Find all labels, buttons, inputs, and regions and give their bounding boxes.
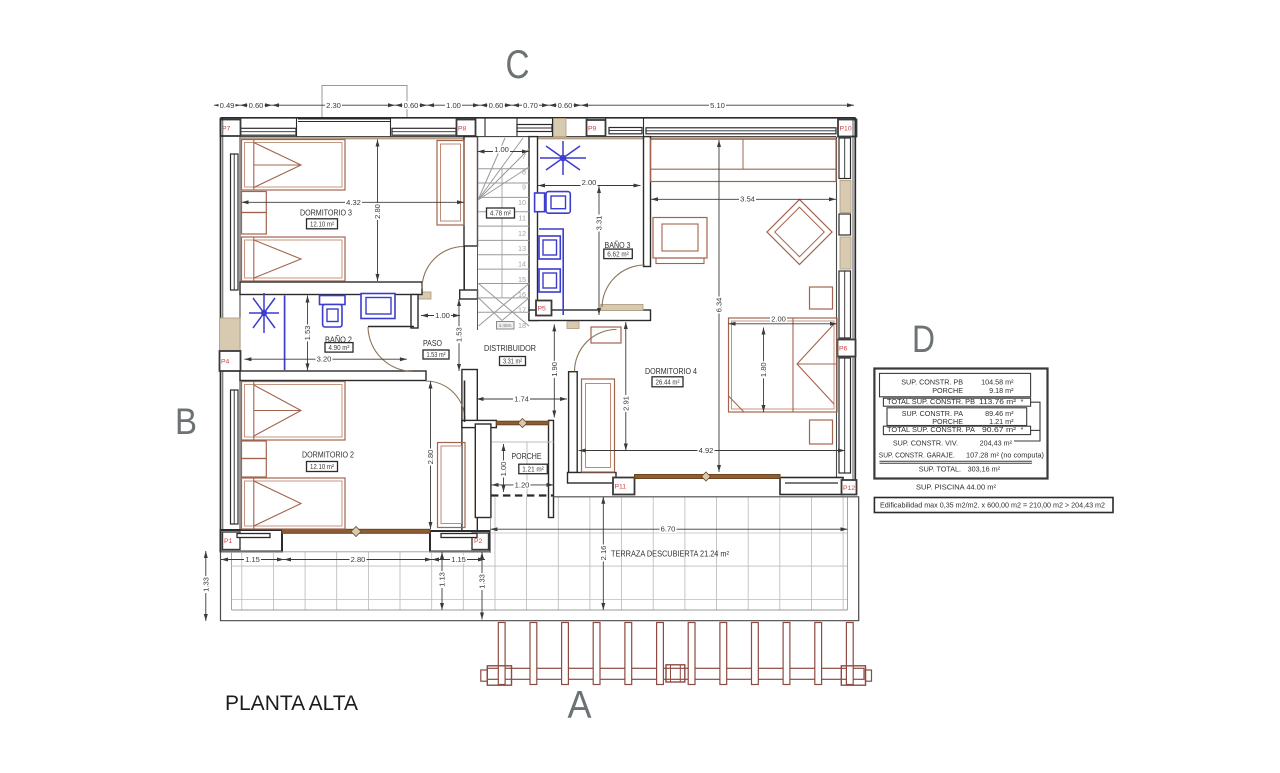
svg-text:P12: P12 [843,485,855,492]
svg-text:1.90: 1.90 [550,362,559,377]
svg-text:1.20: 1.20 [515,480,530,489]
svg-text:1.74: 1.74 [514,394,529,403]
svg-text:0.60: 0.60 [558,101,573,110]
svg-text:4.78 m²: 4.78 m² [490,209,511,218]
svg-text:1.33: 1.33 [478,574,487,589]
svg-text:9.18 m²: 9.18 m² [989,386,1014,395]
svg-text:DORMITORIO 2: DORMITORIO 2 [302,450,354,459]
svg-text:3.31: 3.31 [595,216,604,231]
svg-text:104.58 m²: 104.58 m² [981,378,1014,387]
svg-text:D: D [912,319,935,361]
svg-text:SUP. CONSTR. VIV.: SUP. CONSTR. VIV. [893,439,958,448]
svg-text:12.10 m²: 12.10 m² [310,220,334,229]
svg-text:17: 17 [518,306,526,315]
svg-text:2.91: 2.91 [622,396,631,411]
svg-text:1.00: 1.00 [499,462,508,477]
svg-text:2.80: 2.80 [351,555,366,564]
svg-text:4.32: 4.32 [346,198,361,207]
svg-text:4.90 m²: 4.90 m² [329,343,350,352]
svg-text:16: 16 [518,290,526,299]
svg-text:1.00: 1.00 [494,145,509,154]
svg-text:1.15: 1.15 [451,555,466,564]
svg-text:SUP. CONSTR. PB: SUP. CONSTR. PB [901,378,963,387]
svg-text:7: 7 [522,152,526,161]
svg-text:3.54: 3.54 [740,195,755,204]
svg-text:5.10: 5.10 [710,101,725,110]
svg-text:9: 9 [522,183,526,192]
svg-text:3.20: 3.20 [317,355,332,364]
svg-text:204,43 m²: 204,43 m² [980,439,1013,448]
svg-text:2.16: 2.16 [599,546,608,561]
svg-text:TOTAL SUP. CONSTR. PA: TOTAL SUP. CONSTR. PA [887,425,975,434]
svg-text:B: B [175,401,197,442]
svg-text:0.60: 0.60 [404,101,419,110]
svg-text:PASO: PASO [423,339,442,348]
svg-text:P2: P2 [474,538,483,545]
svg-text:13: 13 [518,244,526,253]
svg-text:1.21 m²: 1.21 m² [522,465,544,474]
svg-text:PORCHE: PORCHE [512,452,542,461]
svg-text:14: 14 [518,259,526,268]
svg-text:0.60: 0.60 [249,101,264,110]
svg-text:0.49: 0.49 [220,101,235,110]
svg-text:107.28 m² (no computa): 107.28 m² (no computa) [966,451,1044,460]
svg-text:TOTAL SUP. CONSTR. PB: TOTAL SUP. CONSTR. PB [887,397,975,406]
svg-text:P6: P6 [839,346,848,353]
svg-text:1.13: 1.13 [438,572,447,587]
svg-text:90.67 m²: 90.67 m² [982,425,1017,434]
svg-text:0.70: 0.70 [523,101,538,110]
svg-text:10: 10 [518,198,526,207]
svg-text:303,16 m²: 303,16 m² [968,465,1001,474]
svg-text:11: 11 [519,213,526,222]
svg-text:*: * [1021,425,1024,434]
svg-text:6.70: 6.70 [661,525,676,534]
svg-text:A: A [568,684,592,727]
svg-text:1.33: 1.33 [202,577,211,592]
svg-text:18: 18 [518,321,526,330]
svg-text:PORCHE: PORCHE [932,386,963,395]
svg-text:6.62 m²: 6.62 m² [607,250,629,259]
svg-text:0.60: 0.60 [489,101,504,110]
svg-text:P10: P10 [840,126,852,133]
svg-text:C: C [506,43,530,87]
svg-text:8: 8 [522,167,526,176]
svg-text:12: 12 [518,229,526,238]
svg-text:P4: P4 [221,359,230,366]
svg-text:P11: P11 [615,484,627,491]
svg-text:*: * [1021,397,1024,406]
svg-text:2.00: 2.00 [771,314,786,323]
svg-text:4.48m: 4.48m [499,323,512,328]
svg-text:2.80: 2.80 [426,450,435,465]
svg-text:113.76 m²: 113.76 m² [979,397,1017,406]
svg-text:DISTRIBUIDOR: DISTRIBUIDOR [484,344,536,353]
svg-text:15: 15 [518,275,526,284]
svg-text:1.00: 1.00 [435,311,450,320]
svg-text:1.53: 1.53 [455,327,464,342]
svg-text:4.92: 4.92 [699,446,714,455]
svg-text:DORMITORIO 3: DORMITORIO 3 [300,209,352,218]
svg-text:P8: P8 [458,125,467,132]
svg-text:DORMITORIO 4: DORMITORIO 4 [645,367,697,376]
svg-text:TERRAZA DESCUBIERTA 21.24 m²: TERRAZA DESCUBIERTA 21.24 m² [611,550,729,559]
svg-text:P7: P7 [222,125,231,132]
svg-text:6.34: 6.34 [715,298,724,313]
svg-text:1.00: 1.00 [446,101,461,110]
svg-text:1.15: 1.15 [245,555,260,564]
svg-text:SUP. CONSTR. GARAJE.: SUP. CONSTR. GARAJE. [879,451,955,460]
svg-text:Edificabilidad max 0,35 m2/m2: Edificabilidad max 0,35 m2/m2. x 600,00 … [880,501,1105,510]
svg-text:26.44 m²: 26.44 m² [656,378,680,387]
svg-text:P1: P1 [224,538,233,545]
svg-text:SUP. TOTAL.: SUP. TOTAL. [919,465,961,474]
svg-text:2.30: 2.30 [326,101,341,110]
svg-text:2.00: 2.00 [582,178,597,187]
svg-text:12.10 m²: 12.10 m² [310,462,334,471]
svg-text:P9: P9 [588,126,597,133]
svg-text:1.53 m²: 1.53 m² [427,350,446,359]
svg-text:SUP. PISCINA 44.00 m²: SUP. PISCINA 44.00 m² [916,483,997,492]
svg-text:P5: P5 [538,306,547,313]
svg-text:1.53: 1.53 [303,326,312,341]
svg-text:PLANTA ALTA: PLANTA ALTA [225,692,358,715]
svg-text:1.80: 1.80 [759,362,768,377]
svg-text:2.80: 2.80 [373,204,382,219]
svg-text:3.31 m²: 3.31 m² [503,357,522,366]
